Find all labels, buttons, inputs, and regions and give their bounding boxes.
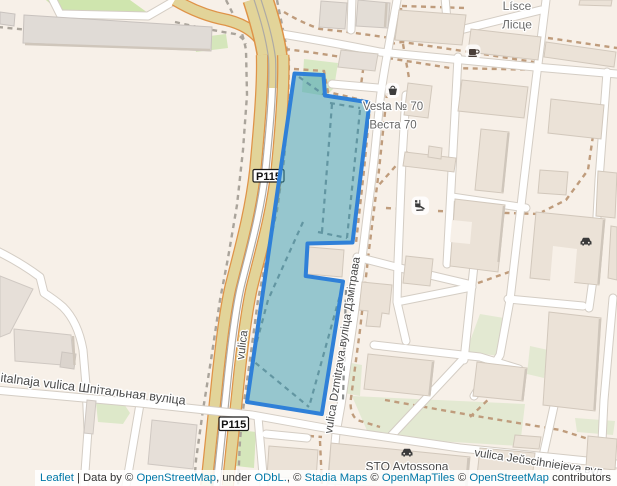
- svg-text:Веста 70: Веста 70: [369, 120, 416, 132]
- svg-text:Vesta № 70: Vesta № 70: [363, 101, 423, 113]
- svg-text:Leaflet | Data by © OpenStreet: Leaflet | Data by © OpenStreetMap, under…: [40, 472, 611, 484]
- svg-text:Lísce: Lísce: [503, 0, 532, 13]
- svg-text:Лісце: Лісце: [502, 18, 532, 32]
- svg-text:P115: P115: [221, 419, 246, 431]
